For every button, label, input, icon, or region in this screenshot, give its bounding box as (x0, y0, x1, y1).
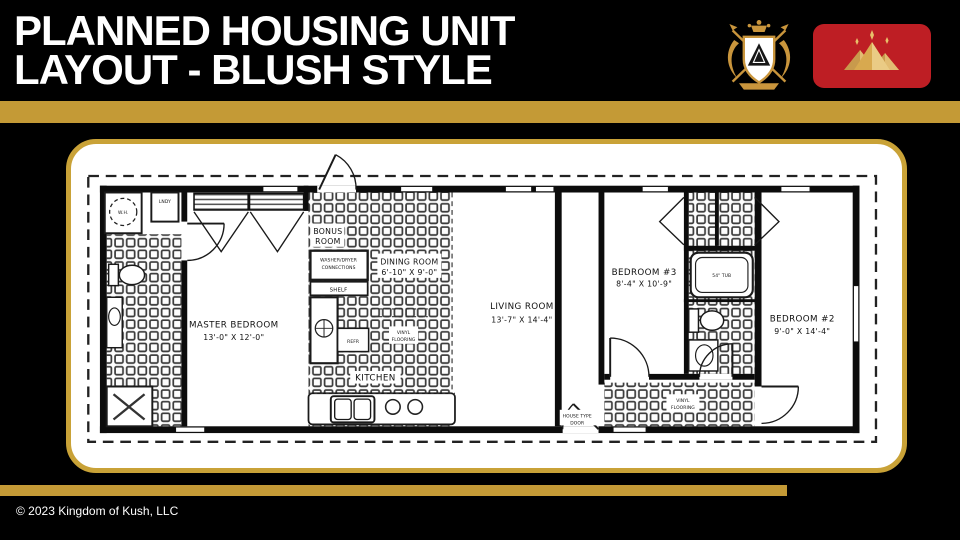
title-line-2: LAYOUT - BLUSH STYLE (14, 51, 714, 90)
room-dims-dining-room: 6'-10" X 9'-0" (381, 268, 437, 277)
pyramid-flag-logo (813, 24, 931, 88)
room-label-bonus-room-2: ROOM (315, 237, 340, 246)
room-label-bedroom2: BEDROOM #2 (770, 315, 835, 325)
toilet2-icon (689, 309, 724, 332)
bottom-gold-divider (0, 485, 787, 496)
copyright-text: © 2023 Kingdom of Kush, LLC (16, 504, 178, 518)
room-dims-living-room: 13'-7" X 14'-4" (491, 315, 552, 324)
page-title: PLANNED HOUSING UNIT LAYOUT - BLUSH STYL… (14, 12, 714, 89)
room-label-living-room: LIVING ROOM (490, 302, 554, 312)
label-refrigerator: REFR (347, 339, 359, 345)
label-vinyl-hall-1: VINYL (676, 398, 690, 404)
laundry-closet (151, 193, 178, 222)
room-label-dining-room: DINING ROOM (380, 257, 438, 266)
room-label-bonus-room-1: BONUS (313, 227, 342, 236)
toilet-icon (109, 264, 145, 285)
master-closet (194, 193, 304, 251)
kingdom-crest-logo (722, 16, 796, 96)
label-tub: 54" TUB (712, 273, 731, 279)
title-line-1: PLANNED HOUSING UNIT (14, 12, 714, 51)
room-dims-bedroom2: 9'-0" X 14'-4" (774, 327, 830, 336)
label-house-door-2: DOOR (570, 420, 584, 426)
room-label-bedroom3: BEDROOM #3 (612, 268, 677, 278)
floor-plan-card: MASTER BEDROOM 13'-0" X 12'-0" BONUS ROO… (66, 139, 907, 473)
sink2-icon (689, 340, 718, 371)
label-vinyl-kitchen-1: VINYL (397, 330, 411, 336)
room-dims-bedroom3: 8'-4" X 10'-9" (616, 280, 672, 289)
slide: PLANNED HOUSING UNIT LAYOUT - BLUSH STYL… (0, 0, 960, 540)
label-shelf: SHELF (330, 287, 348, 293)
shower-icon (107, 387, 153, 427)
top-gold-divider (0, 101, 960, 123)
kitchen-sink-icon (331, 396, 375, 422)
kitchen-counter (308, 393, 454, 424)
label-vinyl-kitchen-2: FLOORING (392, 337, 416, 343)
label-water-heater: W.H. (118, 210, 128, 216)
label-vinyl-hall-2: FLOORING (671, 405, 695, 411)
room-dims-master-bedroom: 13'-0" X 12'-0" (203, 333, 264, 342)
label-house-door-1: HOUSE TYPE (563, 414, 592, 420)
label-washer-dryer-1: WASHER/DRYER (320, 257, 357, 263)
room-label-master-bedroom: MASTER BEDROOM (189, 320, 279, 330)
label-washer-dryer-2: CONNECTIONS (322, 265, 356, 271)
room-label-kitchen: KITCHEN (355, 374, 396, 384)
floor-plan-drawing: MASTER BEDROOM 13'-0" X 12'-0" BONUS ROO… (71, 144, 902, 468)
label-laundry: LNDY (159, 199, 171, 205)
vanity-sink-icon (107, 297, 123, 347)
